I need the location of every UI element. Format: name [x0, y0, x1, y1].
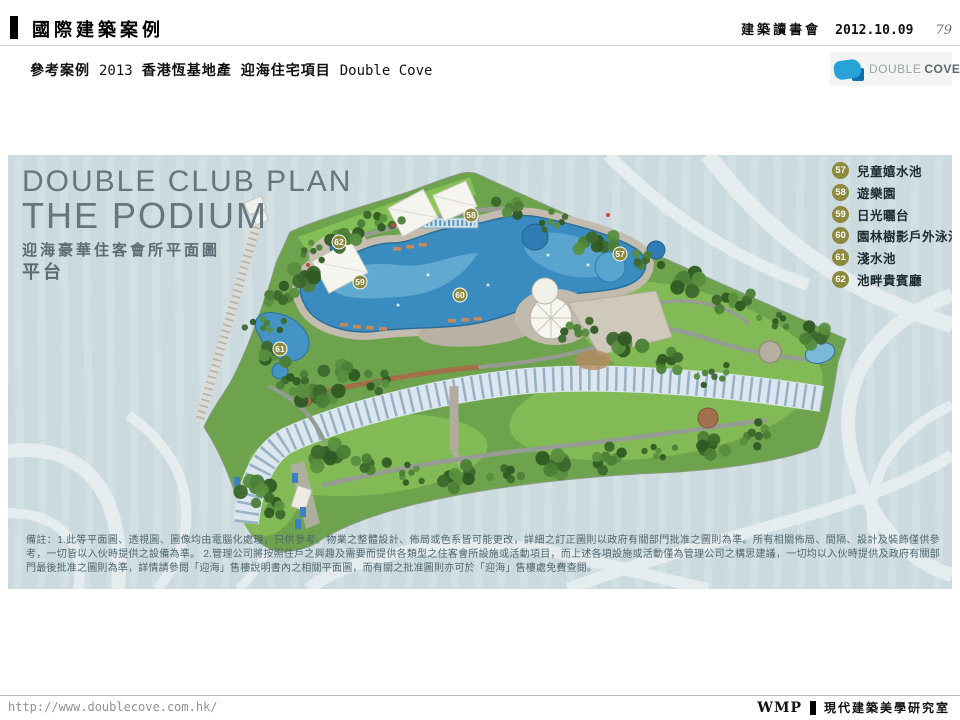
event-name: 建築讀書會 [741, 19, 821, 38]
legend-item: 61淺水池 [832, 247, 952, 269]
footer-studio: 現代建築美學研究室 [824, 699, 950, 716]
case-year: 2013 [99, 63, 133, 79]
svg-text:61: 61 [275, 344, 285, 354]
legend-item: 58遊樂園 [832, 182, 952, 204]
plan-marker: 61 [273, 342, 287, 356]
plan-marker: 57 [613, 247, 627, 261]
plan-title-line1: DOUBLE CLUB PLAN [22, 167, 352, 198]
legend-item: 60園林樹影戶外泳池 [832, 225, 952, 247]
plan-title-line2: THE PODIUM [22, 198, 352, 235]
footer-divider [0, 695, 960, 696]
logo-wordmark: DOUBLECOVE [869, 62, 960, 76]
svg-text:58: 58 [466, 210, 476, 220]
page-title: 國際建築案例 [32, 16, 164, 42]
case-project: 迎海住宅項目 [241, 60, 331, 80]
case-subtitle: 參考案例 2013 香港恆基地產 迎海住宅項目 Double Cove [30, 60, 432, 80]
plan-marker: 59 [353, 275, 367, 289]
header-accent-bar [10, 16, 18, 39]
plan-title-block: DOUBLE CLUB PLAN THE PODIUM 迎海豪華住客會所平面圖 … [22, 167, 352, 281]
legend-label: 遊樂園 [857, 183, 896, 202]
legend-number-badge: 59 [832, 206, 849, 223]
svg-text:57: 57 [615, 249, 625, 259]
legend-number-badge: 62 [832, 271, 849, 288]
facility-legend: 57兒童嬉水池 58遊樂園 59日光曬台 60園林樹影戶外泳池 61淺水池 62… [832, 160, 952, 290]
page-number: 79 [935, 23, 952, 38]
svg-text:60: 60 [455, 290, 465, 300]
header-meta: 建築讀書會 2012.10.09 79 [741, 19, 952, 38]
legend-item: 59日光曬台 [832, 203, 952, 225]
case-developer: 香港恆基地產 [142, 60, 232, 80]
footer-brand: WMP [757, 700, 802, 716]
podium-plan-panel: 57 58 59 60 61 62 DOUBLE CLUB PLAN THE P… [8, 155, 952, 589]
case-project-en: Double Cove [340, 63, 433, 79]
source-url[interactable]: http://www.doublecove.com.hk/ [8, 700, 218, 714]
legend-number-badge: 60 [832, 227, 849, 244]
plan-marker: 60 [453, 288, 467, 302]
plan-subtitle-zh: 平台 [22, 263, 352, 281]
plan-disclaimer: 備註：1.此等平面圖、透視圖、圖像均由電腦化處理，只供參考。物業之整體設計、佈局… [26, 534, 940, 577]
double-cove-logo: DOUBLECOVE [830, 52, 952, 86]
header-divider [0, 45, 960, 46]
legend-item: 62池畔貴賓廳 [832, 268, 952, 290]
event-date: 2012.10.09 [835, 23, 913, 38]
slide: { "header": { "title": "國際建築案例", "event"… [0, 0, 960, 720]
svg-text:59: 59 [355, 277, 365, 287]
footer-credit: WMP 現代建築美學研究室 [757, 699, 950, 716]
legend-number-badge: 58 [832, 184, 849, 201]
legend-label: 日光曬台 [857, 205, 909, 224]
legend-label: 園林樹影戶外泳池 [857, 226, 952, 245]
legend-item: 57兒童嬉水池 [832, 160, 952, 182]
legend-number-badge: 61 [832, 249, 849, 266]
legend-label: 淺水池 [857, 248, 896, 267]
legend-label: 池畔貴賓廳 [857, 270, 922, 289]
plan-title-zh: 迎海豪華住客會所平面圖 [22, 243, 352, 258]
legend-number-badge: 57 [832, 162, 849, 179]
case-prefix: 參考案例 [30, 60, 90, 80]
plan-marker: 58 [464, 208, 478, 222]
legend-label: 兒童嬉水池 [857, 161, 922, 180]
footer-accent-bar [810, 701, 816, 715]
